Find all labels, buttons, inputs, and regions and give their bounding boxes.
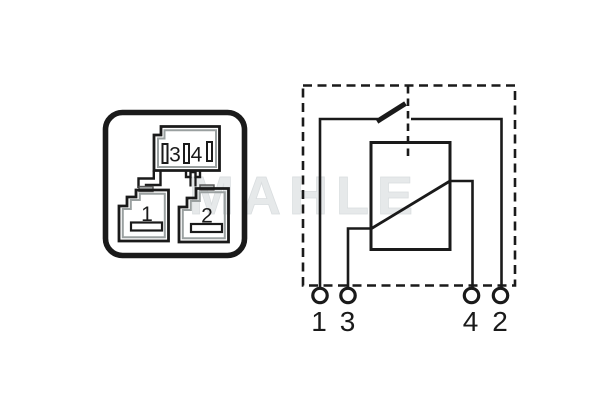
terminal-4-circle [464,288,478,302]
terminal-4-label: 4 [463,306,479,337]
pin-slot-right [207,142,212,161]
pin-1-label: 1 [141,203,153,226]
terminal-1-label: 1 [311,306,327,337]
pin-4-label: 4 [191,144,203,167]
terminal-3-circle [341,288,355,302]
wire-terminal-2 [411,119,502,289]
wire-terminal-3 [348,229,372,289]
switch-contact-symbol [377,104,406,122]
pin-slot-4 [184,144,189,163]
relay-diagram-canvas: MAHLE [0,0,600,400]
terminal-2-circle [493,288,507,302]
terminal-2-label: 2 [492,306,508,337]
pin-slot-3 [163,144,168,163]
wire-terminal-4 [450,181,473,289]
pin-3-label: 3 [169,144,181,167]
pin-2-label: 2 [201,205,213,228]
relay-diagram-svg: MAHLE [0,0,600,400]
terminal-3-label: 3 [340,306,356,337]
terminal-1-circle [313,288,327,302]
